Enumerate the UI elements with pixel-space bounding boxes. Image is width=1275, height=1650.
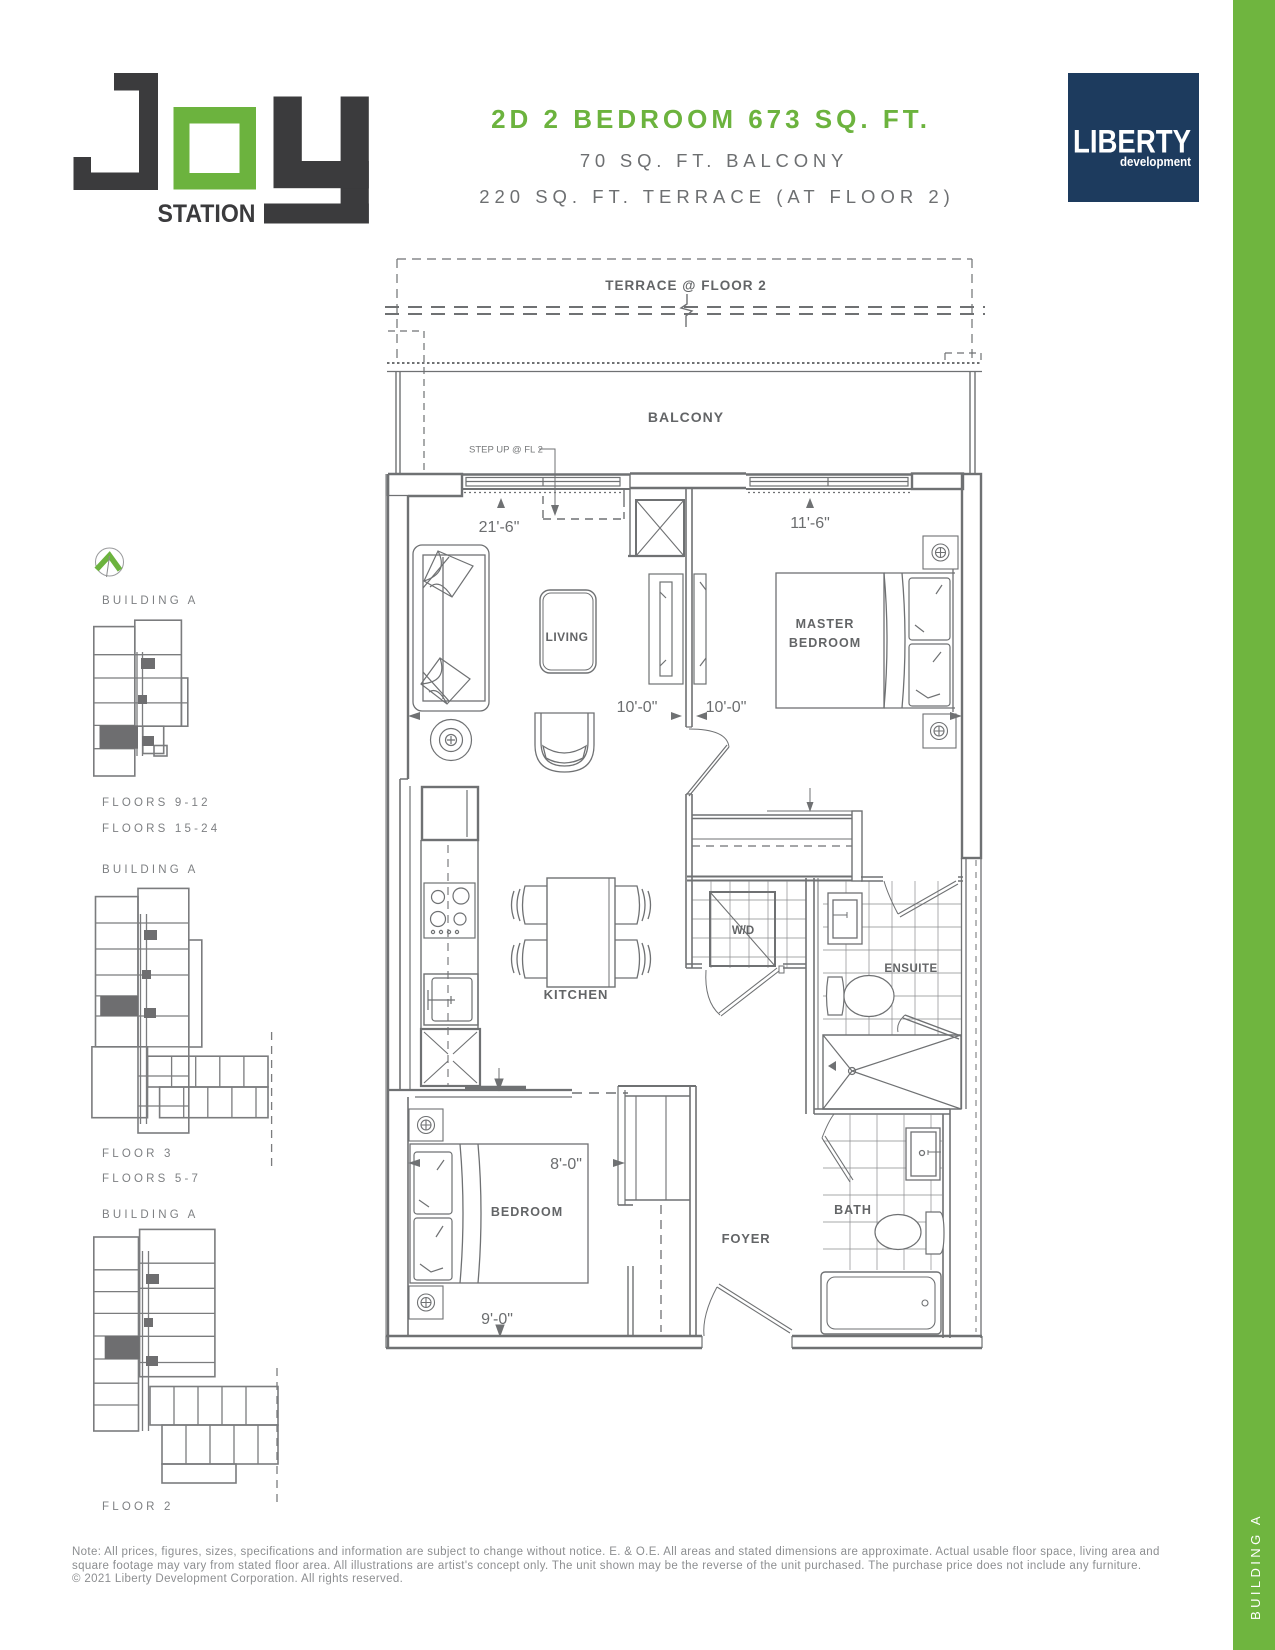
- svg-text:BATH: BATH: [834, 1203, 872, 1217]
- svg-text:8'-0": 8'-0": [550, 1156, 582, 1173]
- svg-text:TERRACE @ FLOOR 2: TERRACE @ FLOOR 2: [605, 278, 766, 293]
- svg-text:LIVING: LIVING: [545, 630, 588, 644]
- svg-text:10'-0": 10'-0": [706, 699, 747, 716]
- svg-text:MASTER: MASTER: [796, 617, 855, 631]
- svg-text:STEP UP @ FL 2: STEP UP @ FL 2: [469, 445, 543, 456]
- svg-text:10'-0": 10'-0": [617, 699, 658, 716]
- svg-text:BEDROOM: BEDROOM: [789, 636, 861, 650]
- svg-text:11'-6": 11'-6": [790, 515, 830, 532]
- svg-text:BUILDING A: BUILDING A: [1248, 1513, 1263, 1620]
- svg-text:BEDROOM: BEDROOM: [491, 1205, 563, 1219]
- svg-text:21'-6": 21'-6": [479, 519, 520, 536]
- svg-text:FOYER: FOYER: [722, 1231, 771, 1246]
- svg-text:KITCHEN: KITCHEN: [544, 987, 609, 1002]
- svg-text:BALCONY: BALCONY: [648, 409, 724, 425]
- svg-text:W/D: W/D: [732, 925, 754, 937]
- svg-text:ENSUITE: ENSUITE: [884, 963, 937, 975]
